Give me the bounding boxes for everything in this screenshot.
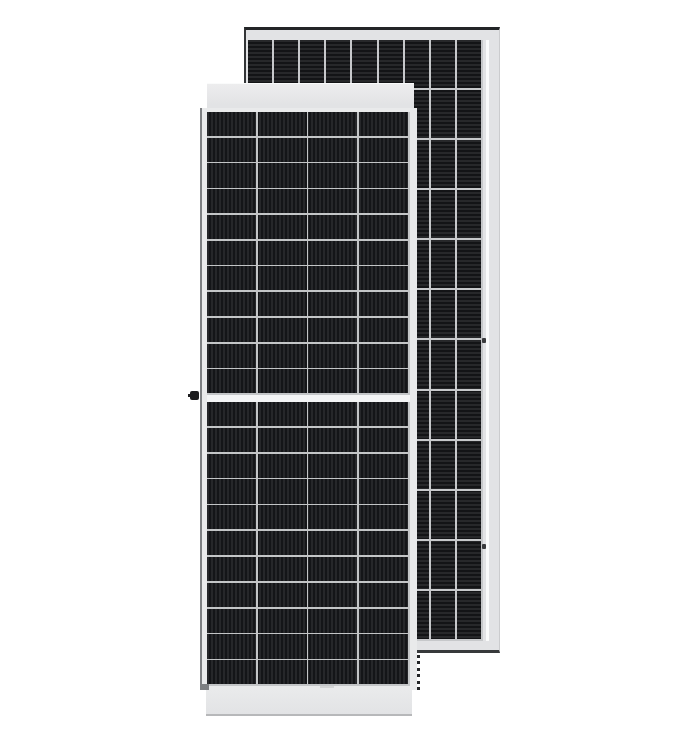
front-solar-panel <box>200 108 417 690</box>
front-panel-bottom-frame <box>206 690 412 716</box>
right-edge-shadow-dashes <box>417 655 420 693</box>
front-panel-top-frame <box>207 83 414 111</box>
rear-panel-right-frame-highlight <box>486 40 489 641</box>
grounding-knob <box>190 391 199 400</box>
product-image <box>0 0 684 748</box>
front-panel-label-marking <box>320 686 334 688</box>
rear-frame-notch <box>482 544 486 549</box>
rear-frame-notch <box>482 338 486 343</box>
front-panel-cell-grid-upper <box>207 112 410 395</box>
front-panel-cell-grid-lower <box>207 402 410 686</box>
front-panel-center-split <box>207 395 410 402</box>
